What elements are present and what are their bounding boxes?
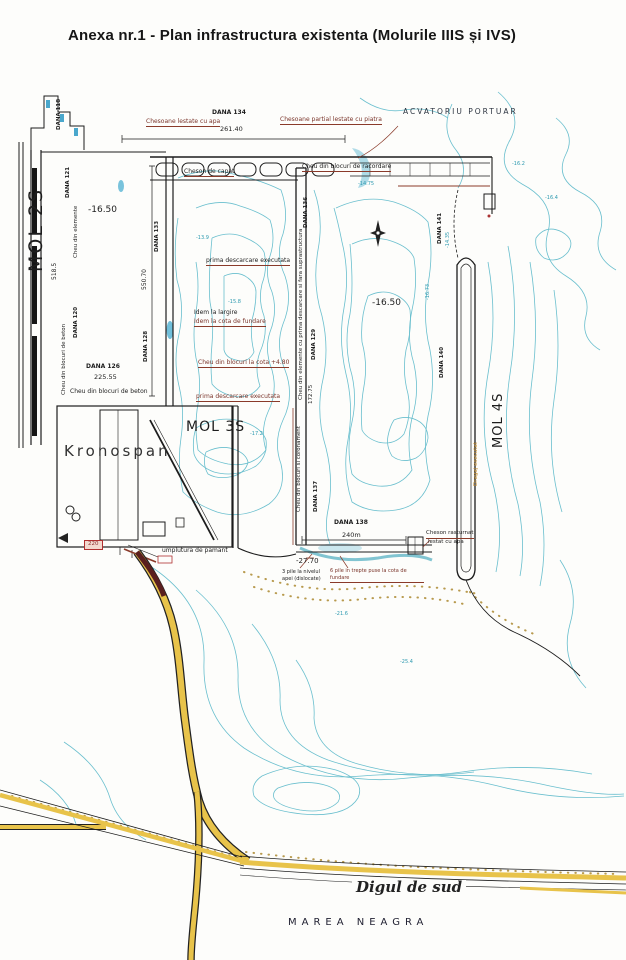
annotation-cheu-blocuri-beton-horizontal: Cheu din blocuri de beton bbox=[70, 389, 148, 395]
annotation-cheu-blocuri-coronament: Cheu din blocuri si coronament bbox=[297, 426, 303, 512]
berth-label-dana-138: DANA 138 bbox=[334, 520, 368, 526]
annotation-umplutura: umplutura de pamant bbox=[162, 548, 228, 554]
sounding-label: -14.35 bbox=[446, 232, 451, 248]
scanned-plan-page: Anexa nr.1 - Plan infrastructura existen… bbox=[0, 0, 626, 960]
berth-label-dana-136: DANA 136 bbox=[304, 197, 310, 228]
annotation-idem-cota-fundare: Idem la cota de fundare bbox=[194, 319, 266, 327]
berth-label-dana-140: DANA 140 bbox=[440, 347, 446, 378]
depth-label-mol4s: -16.50 bbox=[372, 299, 401, 308]
dimension-central-quay: 172.75 bbox=[309, 385, 315, 404]
annotation-chesoane-lestate-apa: Chesoane lestate cu apa bbox=[146, 119, 220, 127]
annotation-cheu-blocuri-cota: Cheu din blocuri la cota +4.80 bbox=[198, 360, 289, 368]
annotation-cheson-rasturnat-line2: lestat cu apa bbox=[428, 540, 464, 546]
dimension-basin-west-quay: 550.70 bbox=[142, 269, 148, 290]
berth-label-dana-133: DANA 133 bbox=[155, 221, 161, 252]
compass-icon bbox=[370, 220, 386, 247]
annotation-box-220: 220 bbox=[84, 540, 103, 550]
berth-label-dana-129: DANA 129 bbox=[312, 329, 318, 360]
berth-label-dana-137: DANA 137 bbox=[314, 481, 320, 512]
annotation-cheu-blocuri-beton-vertical: Cheu din blocuri de beton bbox=[62, 324, 68, 395]
annotation-idem-largire: Idem la largire bbox=[194, 310, 237, 316]
roads-and-breakwaters bbox=[0, 552, 626, 960]
annotation-cheu-racordare: Cheu din blocuri de racordare bbox=[302, 164, 391, 172]
area-label-mol-3s: MOL 3S bbox=[186, 420, 245, 434]
berth-label-dana-118: DANA 118 bbox=[57, 99, 63, 130]
area-label-mol-2s: MOL 2S bbox=[27, 188, 46, 272]
annotation-prima-descarcare-2: prima descarcare executata bbox=[196, 394, 280, 402]
annotation-dragaj: Dragaj executat bbox=[474, 442, 480, 486]
annotation-chesoane-partial: Chesoane partial lestate cu piatra bbox=[280, 117, 382, 125]
annotation-cheson-rasturnat-line1: Cheson rasturnat bbox=[426, 531, 474, 539]
red-details bbox=[124, 126, 491, 568]
annotation-pile-nivelul-apei: 3 pile la nivelul apei (dislocate) bbox=[282, 569, 324, 582]
dimension-dana-126: 225.55 bbox=[94, 374, 117, 381]
area-label-acvatoriu-portuar: ACVATORIU PORTUAR bbox=[403, 108, 518, 116]
berth-label-dana-126: DANA 126 bbox=[86, 364, 120, 370]
sounding-label: -16.73 bbox=[426, 284, 431, 300]
sounding-label: -16.4 bbox=[545, 196, 558, 201]
annotation-cheson-capat: Cheson de capat bbox=[184, 169, 234, 177]
area-label-mol-4s: MOL 4S bbox=[492, 393, 505, 448]
page-title: Anexa nr.1 - Plan infrastructura existen… bbox=[68, 27, 516, 44]
dimension-west-outer-quay: 518.5 bbox=[52, 263, 58, 280]
sounding-label: -17.2 bbox=[250, 432, 263, 437]
sounding-label: -13.9 bbox=[196, 236, 209, 241]
sounding-label: -14.75 bbox=[358, 182, 374, 187]
area-label-digul-de-sud: Digul de sud bbox=[352, 880, 466, 895]
annotation-cheu-elemente: Cheu din elemente bbox=[74, 206, 80, 258]
sounding-label: -25.4 bbox=[400, 660, 413, 665]
dimension-north-quay: 261.40 bbox=[220, 126, 243, 133]
depth-label-mol3s: -16.50 bbox=[88, 206, 117, 215]
sounding-label: -15.8 bbox=[228, 300, 241, 305]
berth-label-dana-120: DANA 120 bbox=[74, 307, 80, 338]
sounding-label: -16.2 bbox=[512, 162, 525, 167]
berth-label-dana-134: DANA 134 bbox=[212, 110, 246, 116]
sounding-label: -21.6 bbox=[335, 612, 348, 617]
annotation-pile-trepte: 6 pile in trepte puse la cota de fundare bbox=[330, 568, 424, 583]
annotation-cheu-elemente-central: Cheu din elemente cu prima descarcare si… bbox=[299, 229, 305, 400]
annotation-prima-descarcare-1: prima descarcare executata bbox=[206, 258, 290, 266]
dimension-south-quay: 240m bbox=[342, 532, 361, 539]
area-label-kronospan: Kronospan bbox=[64, 444, 171, 459]
berth-label-dana-121: DANA 121 bbox=[66, 167, 72, 198]
berth-label-dana-128: DANA 128 bbox=[144, 331, 150, 362]
depth-label-south-quay: -27.70 bbox=[296, 558, 319, 565]
bathymetric-contours bbox=[40, 92, 624, 840]
berth-label-dana-141: DANA 141 bbox=[438, 213, 444, 244]
area-label-marea-neagra: MAREA NEAGRA bbox=[288, 918, 428, 928]
